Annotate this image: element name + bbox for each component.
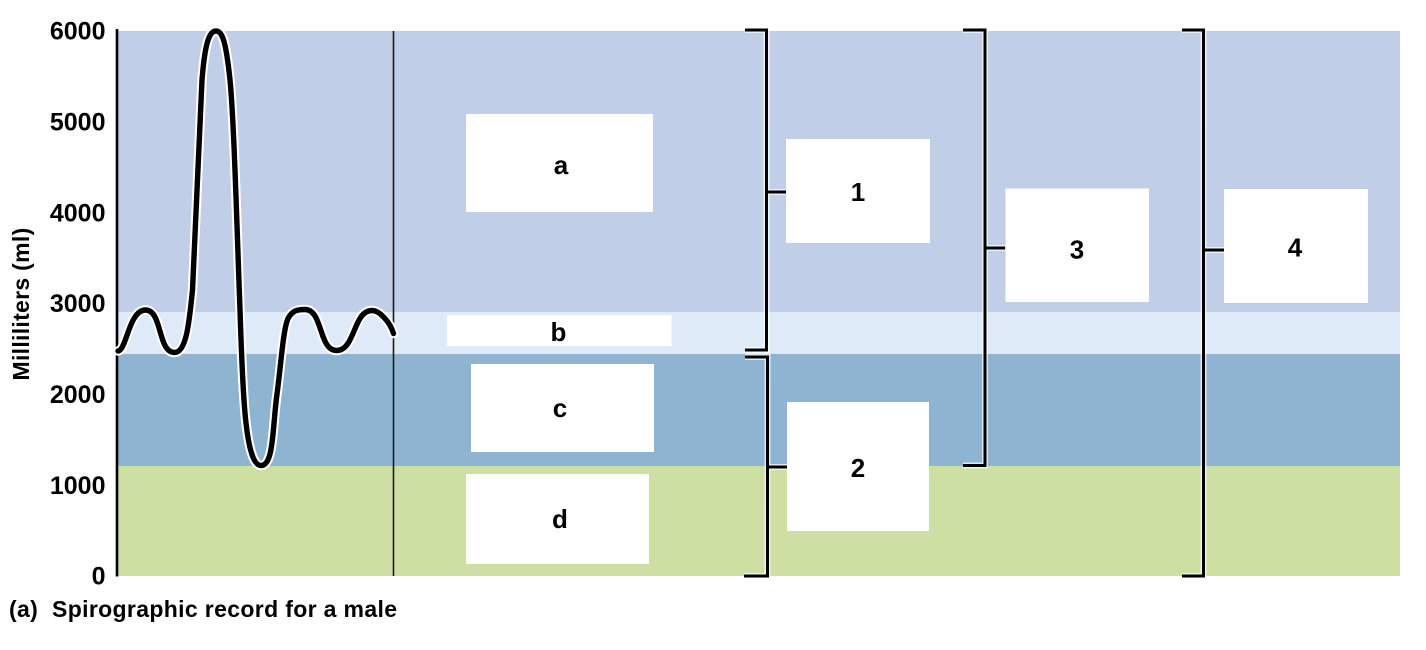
svg-text:4: 4 [1288, 233, 1303, 263]
svg-text:a: a [554, 150, 569, 180]
svg-text:2000: 2000 [50, 381, 106, 409]
svg-text:Milliliters (ml): Milliliters (ml) [8, 227, 34, 380]
svg-text:b: b [551, 317, 567, 347]
svg-text:5000: 5000 [50, 109, 106, 137]
svg-text:3000: 3000 [50, 290, 106, 318]
svg-text:(a)Spirographic record for a m: (a)Spirographic record for a male [9, 596, 397, 622]
svg-text:d: d [552, 504, 568, 534]
svg-text:c: c [553, 393, 567, 423]
svg-text:0: 0 [92, 563, 106, 591]
svg-text:6000: 6000 [50, 18, 106, 46]
svg-text:1000: 1000 [50, 472, 106, 500]
svg-text:4000: 4000 [50, 199, 106, 227]
svg-text:1: 1 [851, 177, 865, 207]
svg-text:2: 2 [851, 453, 865, 483]
svg-text:3: 3 [1070, 235, 1084, 265]
